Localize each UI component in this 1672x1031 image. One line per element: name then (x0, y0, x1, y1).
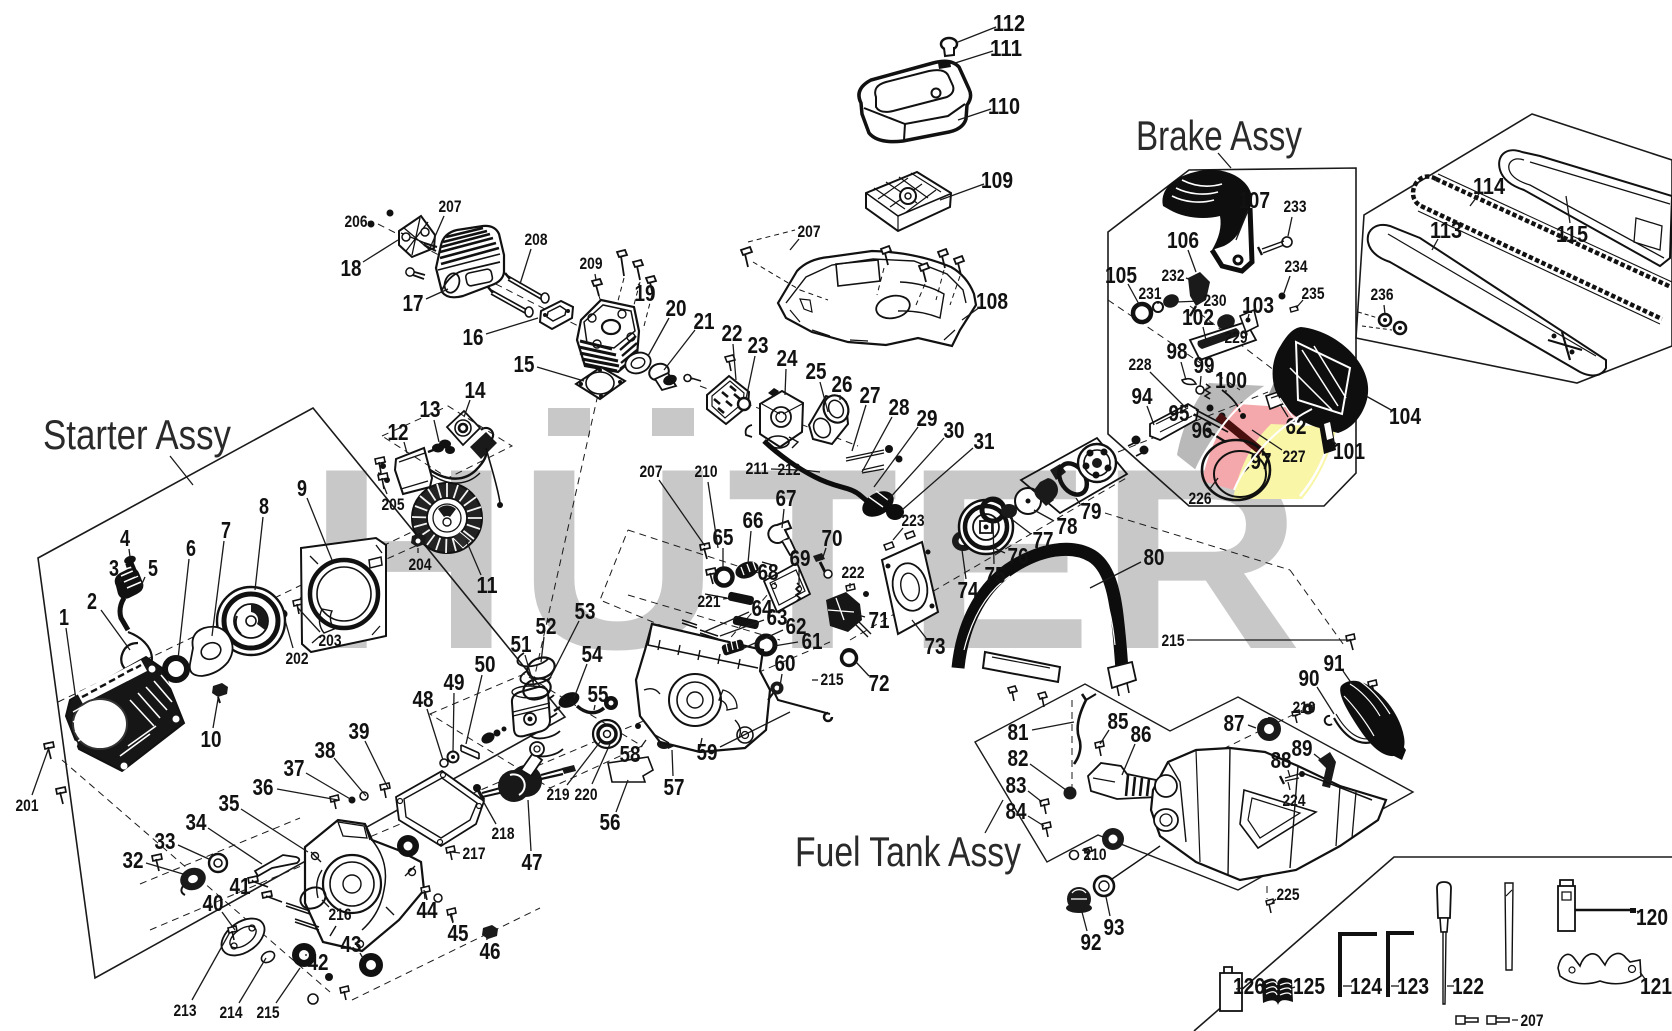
svg-text:38: 38 (315, 737, 336, 763)
svg-text:86: 86 (1131, 721, 1152, 747)
svg-text:55: 55 (588, 681, 609, 707)
svg-text:109: 109 (981, 167, 1013, 193)
svg-text:31: 31 (974, 428, 995, 454)
svg-text:228: 228 (1129, 356, 1152, 374)
svg-text:65: 65 (713, 524, 734, 550)
svg-text:85: 85 (1108, 708, 1129, 734)
svg-text:49: 49 (444, 669, 465, 695)
svg-text:59: 59 (697, 739, 718, 765)
svg-text:75: 75 (985, 562, 1006, 588)
svg-text:91: 91 (1324, 650, 1345, 676)
svg-text:46: 46 (480, 938, 501, 964)
svg-text:231: 231 (1139, 285, 1162, 303)
svg-text:122: 122 (1452, 973, 1484, 999)
svg-text:210: 210 (1084, 846, 1107, 864)
svg-text:3: 3 (109, 555, 119, 581)
svg-text:214: 214 (220, 1004, 244, 1022)
svg-text:126: 126 (1233, 973, 1265, 999)
svg-text:115: 115 (1556, 221, 1588, 247)
svg-text:36: 36 (253, 774, 274, 800)
svg-text:104: 104 (1389, 403, 1421, 429)
svg-text:226: 226 (1189, 490, 1212, 508)
svg-text:227: 227 (1283, 448, 1306, 466)
svg-text:215: 215 (257, 1004, 280, 1022)
svg-text:120: 120 (1636, 904, 1668, 930)
svg-text:10: 10 (201, 726, 222, 752)
svg-text:23: 23 (748, 332, 769, 358)
svg-text:90: 90 (1299, 665, 1320, 691)
svg-text:71: 71 (869, 607, 890, 633)
svg-text:14: 14 (465, 377, 486, 403)
svg-text:48: 48 (413, 686, 434, 712)
svg-text:82: 82 (1008, 745, 1029, 771)
svg-text:123: 123 (1397, 973, 1429, 999)
svg-text:230: 230 (1204, 292, 1227, 310)
svg-text:113: 113 (1430, 217, 1462, 243)
svg-text:37: 37 (284, 755, 305, 781)
svg-text:33: 33 (155, 828, 176, 854)
svg-text:207: 207 (640, 463, 663, 481)
svg-text:205: 205 (382, 496, 405, 514)
svg-text:62: 62 (786, 613, 807, 639)
svg-text:18: 18 (341, 255, 362, 281)
svg-text:30: 30 (944, 417, 965, 443)
svg-text:84: 84 (1006, 798, 1027, 824)
svg-text:47: 47 (522, 849, 543, 875)
svg-text:15: 15 (514, 351, 535, 377)
svg-text:66: 66 (743, 507, 764, 533)
svg-text:67: 67 (776, 485, 797, 511)
svg-text:76: 76 (1008, 543, 1029, 569)
svg-text:68: 68 (758, 559, 779, 585)
svg-text:64: 64 (752, 595, 773, 621)
svg-text:22: 22 (722, 320, 743, 346)
svg-text:210: 210 (695, 463, 718, 481)
svg-text:89: 89 (1292, 735, 1313, 761)
svg-text:21: 21 (694, 308, 715, 334)
svg-text:107: 107 (1238, 187, 1270, 213)
svg-text:111: 111 (990, 35, 1022, 61)
svg-text:60: 60 (775, 650, 796, 676)
svg-text:101: 101 (1333, 438, 1365, 464)
svg-text:99: 99 (1194, 352, 1215, 378)
svg-text:201: 201 (16, 797, 39, 815)
svg-text:207: 207 (1521, 1012, 1544, 1030)
svg-text:78: 78 (1057, 513, 1078, 539)
svg-text:Brake Assy: Brake Assy (1136, 112, 1302, 159)
svg-text:45: 45 (448, 920, 469, 946)
svg-text:70: 70 (822, 525, 843, 551)
svg-text:233: 233 (1284, 198, 1307, 216)
svg-text:223: 223 (902, 512, 925, 530)
svg-text:225: 225 (1277, 886, 1300, 904)
svg-text:24: 24 (777, 345, 798, 371)
svg-text:62: 62 (1286, 413, 1307, 439)
svg-text:211: 211 (746, 460, 769, 478)
svg-text:28: 28 (889, 394, 910, 420)
svg-text:Fuel Tank Assy: Fuel Tank Assy (795, 828, 1021, 875)
svg-text:43: 43 (341, 931, 362, 957)
svg-text:34: 34 (186, 809, 207, 835)
svg-text:207: 207 (439, 198, 462, 216)
svg-text:229: 229 (1225, 329, 1248, 347)
svg-text:105: 105 (1105, 262, 1137, 288)
svg-text:1: 1 (59, 604, 69, 630)
svg-text:42: 42 (308, 949, 329, 975)
svg-text:51: 51 (511, 631, 532, 657)
svg-text:79: 79 (1081, 498, 1102, 524)
svg-text:Starter Assy: Starter Assy (43, 411, 231, 458)
svg-text:94: 94 (1132, 383, 1153, 409)
svg-text:41: 41 (230, 873, 251, 899)
svg-text:27: 27 (860, 382, 881, 408)
svg-text:112: 112 (993, 10, 1025, 36)
svg-text:44: 44 (417, 897, 438, 923)
svg-text:8: 8 (259, 493, 269, 519)
svg-text:72: 72 (869, 670, 890, 696)
svg-text:17: 17 (403, 290, 424, 316)
svg-text:5: 5 (148, 555, 158, 581)
svg-text:9: 9 (297, 475, 307, 501)
svg-text:52: 52 (536, 613, 557, 639)
svg-text:88: 88 (1271, 747, 1292, 773)
svg-text:110: 110 (988, 93, 1020, 119)
svg-text:69: 69 (790, 545, 811, 571)
svg-text:57: 57 (664, 774, 685, 800)
svg-text:25: 25 (806, 358, 827, 384)
svg-text:12: 12 (388, 419, 409, 445)
svg-text:224: 224 (1283, 792, 1307, 810)
svg-text:95: 95 (1169, 400, 1190, 426)
svg-text:218: 218 (492, 825, 515, 843)
svg-text:208: 208 (525, 231, 548, 249)
svg-text:213: 213 (174, 1002, 197, 1020)
svg-text:215: 215 (1162, 632, 1185, 650)
svg-text:217: 217 (463, 845, 486, 863)
svg-text:216: 216 (329, 906, 352, 924)
svg-text:204: 204 (409, 556, 433, 574)
svg-text:13: 13 (420, 396, 441, 422)
svg-text:121: 121 (1640, 973, 1672, 999)
svg-text:221: 221 (698, 593, 721, 611)
svg-text:125: 125 (1293, 973, 1325, 999)
svg-text:97: 97 (1251, 448, 1272, 474)
svg-text:234: 234 (1285, 258, 1309, 276)
svg-text:236: 236 (1371, 286, 1394, 304)
svg-text:209: 209 (580, 255, 603, 273)
svg-text:80: 80 (1144, 544, 1165, 570)
svg-text:81: 81 (1008, 719, 1029, 745)
svg-text:96: 96 (1192, 417, 1213, 443)
svg-text:20: 20 (666, 295, 687, 321)
svg-text:74: 74 (958, 577, 979, 603)
svg-text:77: 77 (1033, 527, 1054, 553)
svg-text:2: 2 (87, 588, 97, 614)
svg-text:73: 73 (925, 633, 946, 659)
svg-text:6: 6 (186, 535, 196, 561)
svg-text:39: 39 (349, 718, 370, 744)
svg-text:26: 26 (832, 371, 853, 397)
svg-text:235: 235 (1302, 285, 1325, 303)
svg-text:203: 203 (319, 632, 342, 650)
svg-text:100: 100 (1215, 367, 1247, 393)
svg-text:58: 58 (620, 741, 641, 767)
svg-text:87: 87 (1224, 710, 1245, 736)
svg-text:11: 11 (477, 572, 498, 598)
svg-text:207: 207 (798, 223, 821, 241)
svg-text:29: 29 (917, 405, 938, 431)
svg-text:16: 16 (463, 324, 484, 350)
svg-text:108: 108 (976, 288, 1008, 314)
svg-text:35: 35 (219, 790, 240, 816)
svg-text:98: 98 (1167, 338, 1188, 364)
svg-text:93: 93 (1104, 914, 1125, 940)
svg-text:106: 106 (1167, 227, 1199, 253)
svg-text:210: 210 (1293, 699, 1316, 717)
svg-text:222: 222 (842, 564, 865, 582)
svg-text:103: 103 (1242, 292, 1274, 318)
svg-text:19: 19 (635, 280, 656, 306)
svg-text:54: 54 (582, 641, 603, 667)
svg-text:4: 4 (120, 525, 130, 551)
svg-text:56: 56 (600, 809, 621, 835)
svg-text:220: 220 (575, 786, 598, 804)
svg-text:206: 206 (345, 213, 368, 231)
svg-text:232: 232 (1162, 267, 1185, 285)
svg-text:53: 53 (575, 598, 596, 624)
svg-text:50: 50 (475, 651, 496, 677)
svg-text:83: 83 (1006, 772, 1027, 798)
svg-text:124: 124 (1350, 973, 1382, 999)
svg-text:202: 202 (286, 650, 309, 668)
svg-text:40: 40 (203, 890, 224, 916)
svg-text:32: 32 (123, 847, 144, 873)
svg-text:92: 92 (1081, 929, 1102, 955)
svg-text:7: 7 (221, 517, 231, 543)
svg-text:219: 219 (547, 786, 570, 804)
svg-text:215: 215 (821, 671, 844, 689)
